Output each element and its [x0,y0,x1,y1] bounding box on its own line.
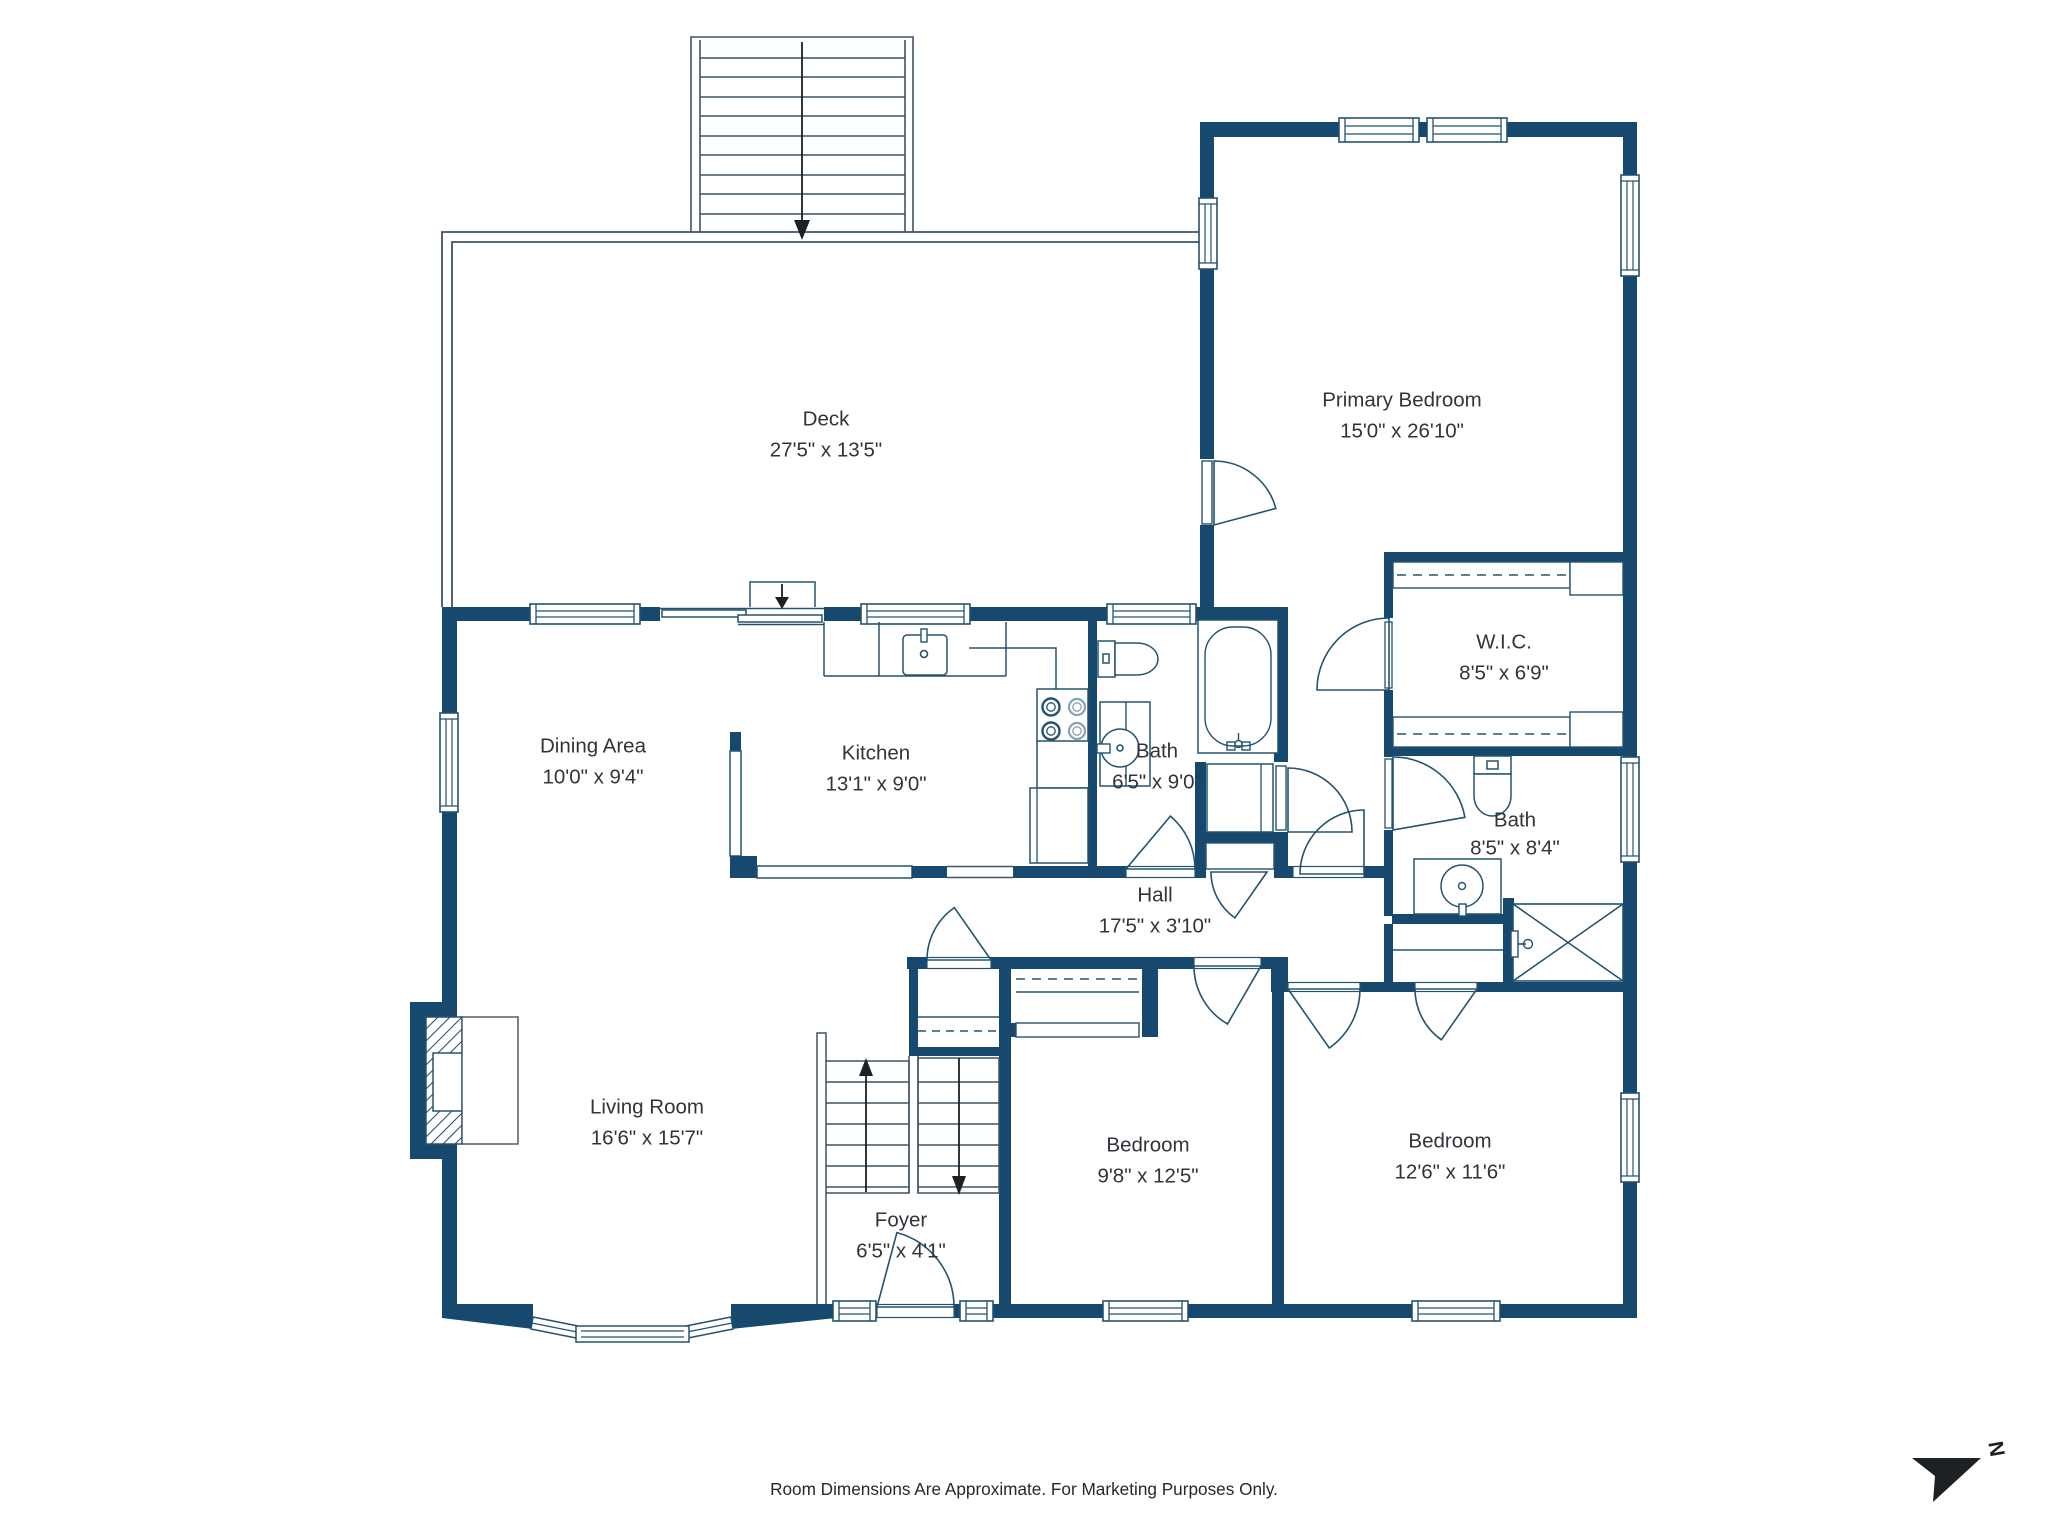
svg-text:Room Dimensions Are Approximat: Room Dimensions Are Approximate. For Mar… [770,1479,1278,1499]
svg-text:6'5" x 9'0": 6'5" x 9'0" [1112,771,1202,794]
svg-text:Primary Bedroom: Primary Bedroom [1322,389,1482,412]
svg-text:17'5" x 3'10": 17'5" x 3'10" [1099,915,1211,938]
svg-text:10'0" x 9'4": 10'0" x 9'4" [542,766,643,789]
svg-text:Bath: Bath [1136,740,1178,763]
svg-text:Kitchen: Kitchen [842,742,910,765]
svg-text:Deck: Deck [803,408,850,431]
svg-text:27'5" x 13'5": 27'5" x 13'5" [770,439,882,462]
svg-text:8'5" x 6'9": 8'5" x 6'9" [1459,662,1549,685]
svg-text:6'5" x 4'1": 6'5" x 4'1" [856,1240,946,1263]
svg-text:8'5" x 8'4": 8'5" x 8'4" [1470,837,1560,860]
svg-text:15'0" x 26'10": 15'0" x 26'10" [1340,420,1464,443]
svg-text:12'6" x 11'6": 12'6" x 11'6" [1395,1161,1506,1184]
svg-text:Dining Area: Dining Area [540,735,647,758]
svg-text:W.I.C.: W.I.C. [1476,631,1532,654]
svg-text:Bedroom: Bedroom [1106,1134,1189,1157]
svg-text:9'8" x 12'5": 9'8" x 12'5" [1097,1165,1198,1188]
svg-text:13'1" x 9'0": 13'1" x 9'0" [825,773,926,796]
svg-text:Bedroom: Bedroom [1408,1130,1491,1153]
svg-text:Foyer: Foyer [875,1209,928,1232]
svg-text:16'6" x 15'7": 16'6" x 15'7" [591,1127,703,1150]
svg-text:Living Room: Living Room [590,1096,704,1119]
svg-text:Hall: Hall [1137,884,1172,907]
svg-text:Bath: Bath [1494,809,1536,832]
